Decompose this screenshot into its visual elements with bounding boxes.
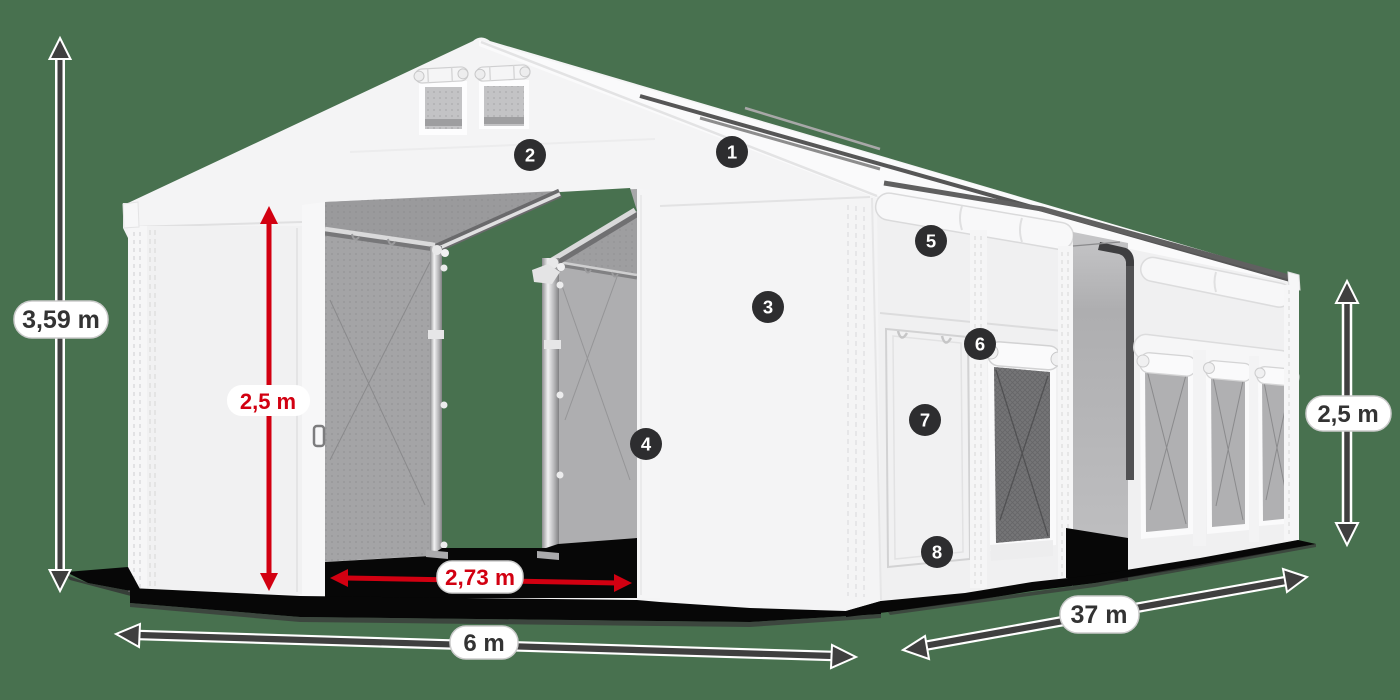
svg-text:8: 8 (932, 542, 942, 563)
svg-text:2,5 m: 2,5 m (240, 389, 296, 414)
svg-text:4: 4 (641, 434, 652, 455)
svg-text:1: 1 (727, 142, 737, 163)
svg-text:6: 6 (975, 334, 985, 355)
svg-text:3: 3 (763, 297, 773, 318)
svg-text:2: 2 (525, 145, 535, 166)
svg-text:5: 5 (926, 231, 936, 252)
svg-text:3,59 m: 3,59 m (22, 306, 100, 334)
svg-text:2,5 m: 2,5 m (1317, 401, 1378, 428)
svg-text:37 m: 37 m (1071, 601, 1128, 629)
svg-text:2,73 m: 2,73 m (445, 565, 515, 590)
svg-text:6 m: 6 m (463, 630, 504, 657)
svg-text:7: 7 (920, 410, 930, 431)
